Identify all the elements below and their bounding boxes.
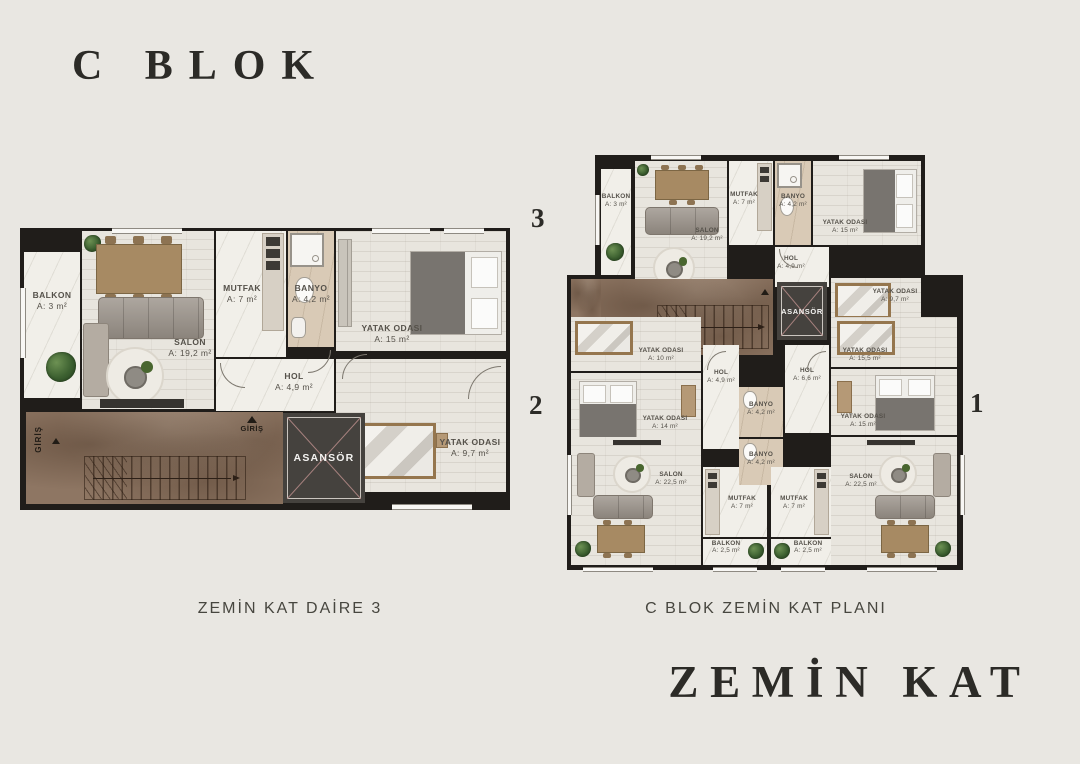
room-yatak-odasi-1: YATAK ODASI A: 15 m² bbox=[336, 231, 506, 351]
u2-hol-area: A: 4,9 m² bbox=[701, 377, 741, 385]
window bbox=[781, 567, 825, 572]
u1-room-salon: SALON A: 22,5 m² bbox=[831, 437, 957, 565]
asansor-label: ASANSÖR bbox=[294, 452, 355, 464]
u2-yatak2-label: YATAK ODASI bbox=[643, 415, 688, 422]
giris-label: GİRİŞ bbox=[232, 416, 272, 433]
dining-table bbox=[96, 244, 182, 294]
stairs bbox=[84, 456, 246, 500]
entrance-arrow-icon bbox=[52, 438, 60, 444]
u1-room-balkon: BALKON A: 2,5 m² bbox=[771, 539, 831, 565]
window bbox=[713, 567, 757, 572]
u1-room-mutfak: MUTFAK A: 7 m² bbox=[771, 467, 831, 537]
double-bed bbox=[579, 381, 637, 439]
u1-mutfak-label: MUTFAK bbox=[780, 495, 808, 502]
u3-room-balkon: BALKON A: 3 m² bbox=[601, 169, 631, 275]
u1-yatak2-area: A: 15 m² bbox=[833, 421, 893, 429]
unit-number-2: 2 bbox=[529, 390, 543, 421]
u3-room-yatak-odasi-1: YATAK ODASI A: 15 m² bbox=[813, 161, 921, 245]
hol-area: A: 4,9 m² bbox=[262, 382, 326, 393]
dining-table bbox=[655, 170, 709, 200]
u2-banyo-label: BANYO bbox=[749, 401, 773, 408]
kitchen-counter bbox=[262, 233, 284, 331]
window bbox=[372, 228, 430, 234]
u1-balkon-area: A: 2,5 m² bbox=[785, 547, 831, 554]
u3-room-banyo: BANYO A: 4,2 m² bbox=[775, 161, 811, 245]
tv-console bbox=[867, 440, 915, 445]
u1-banyo-label: BANYO bbox=[749, 451, 773, 458]
daire3-floor-plan: BALKON A: 3 m² SALON A: 19,2 m² bbox=[20, 228, 510, 510]
balkon-area: A: 3 m² bbox=[24, 301, 80, 312]
plant-icon bbox=[575, 541, 591, 557]
desk bbox=[837, 381, 852, 413]
floor-plan-sheet: C BLOK BALKON A: 3 m² bbox=[0, 0, 1080, 764]
unit-number-1: 1 bbox=[970, 388, 984, 419]
salon-area: A: 19,2 m² bbox=[158, 348, 222, 359]
u2-yatak1-label: YATAK ODASI bbox=[639, 347, 684, 354]
window bbox=[839, 155, 889, 160]
window bbox=[960, 455, 965, 515]
plant-icon bbox=[637, 164, 649, 176]
u2-room-salon: SALON A: 22,5 m² bbox=[571, 437, 701, 565]
shower bbox=[777, 163, 802, 188]
right-plan-caption: C BLOK ZEMİN KAT PLANI bbox=[567, 600, 965, 618]
mutfak-area: A: 7 m² bbox=[216, 294, 268, 305]
floor-title: ZEMİN KAT bbox=[660, 656, 1040, 708]
window bbox=[583, 567, 653, 572]
dining-table bbox=[597, 525, 645, 553]
u1-salon-label: SALON bbox=[849, 473, 872, 480]
u3-room-salon: SALON A: 19,2 m² bbox=[635, 161, 727, 297]
c-blok-floor-plan: BALKON A: 3 m² SALON A: 19,2 m² bbox=[567, 155, 965, 570]
u1-salon-area: A: 22,5 m² bbox=[833, 481, 889, 489]
entrance-arrow-icon bbox=[247, 416, 257, 423]
sofa bbox=[875, 495, 935, 519]
tv-console bbox=[613, 440, 661, 445]
plant-icon bbox=[935, 541, 951, 557]
u3-room-yatak-odasi-2: YATAK ODASI A: 9,7 m² bbox=[831, 278, 921, 322]
plant-icon bbox=[748, 543, 764, 559]
plant-icon bbox=[606, 243, 624, 261]
u3-mutfak-area: A: 7 m² bbox=[725, 199, 763, 207]
dining-table bbox=[881, 525, 929, 553]
u2-room-banyo: BANYO A: 4,2 m² bbox=[739, 387, 783, 437]
left-plan-caption: ZEMİN KAT DAİRE 3 bbox=[45, 600, 535, 618]
shower bbox=[290, 233, 324, 267]
u1-yatak2-label: YATAK ODASI bbox=[841, 413, 886, 420]
plant-icon bbox=[46, 352, 76, 382]
yatak-odasi-1-area: A: 15 m² bbox=[346, 334, 438, 345]
u3-mutfak-label: MUTFAK bbox=[730, 191, 758, 198]
banyo-label: BANYO bbox=[295, 283, 328, 293]
room-balkon: BALKON A: 3 m² bbox=[24, 252, 80, 398]
window bbox=[112, 228, 182, 234]
u3-banyo-area: A: 4,2 m² bbox=[773, 201, 813, 209]
u1-balkon-label: BALKON bbox=[794, 540, 823, 547]
giris-label: GİRİŞ bbox=[34, 426, 43, 453]
room-banyo: BANYO A: 4,2 m² bbox=[288, 231, 334, 347]
salon-label: SALON bbox=[174, 337, 206, 347]
banyo-area: A: 4,2 m² bbox=[288, 294, 334, 305]
u1-mutfak-area: A: 7 m² bbox=[771, 503, 817, 511]
elevator: ASANSÖR bbox=[777, 282, 827, 340]
u2-balkon-area: A: 2,5 m² bbox=[703, 547, 749, 554]
u1-room-yatak-odasi-2: YATAK ODASI A: 15 m² bbox=[831, 369, 957, 435]
u3-yatak1-area: A: 15 m² bbox=[815, 227, 875, 235]
elevator: ASANSÖR bbox=[283, 413, 365, 503]
window bbox=[867, 567, 937, 572]
u1-banyo-area: A: 4,2 m² bbox=[737, 459, 785, 467]
u3-banyo-label: BANYO bbox=[781, 193, 805, 200]
u2-salon-area: A: 22,5 m² bbox=[641, 479, 701, 487]
unit-number-3: 3 bbox=[531, 203, 545, 234]
u2-salon-label: SALON bbox=[659, 471, 682, 478]
u2-yatak1-area: A: 10 m² bbox=[629, 355, 693, 363]
u2-mutfak-area: A: 7 m² bbox=[717, 503, 767, 511]
block-title: C BLOK bbox=[72, 42, 330, 90]
u3-yatak2-area: A: 9,7 m² bbox=[869, 296, 921, 304]
u3-yatak1-label: YATAK ODASI bbox=[823, 219, 868, 226]
sofa bbox=[593, 495, 653, 519]
yatak-odasi-1-label: YATAK ODASI bbox=[362, 323, 423, 333]
window bbox=[651, 155, 701, 160]
u3-yatak2-label: YATAK ODASI bbox=[873, 288, 918, 295]
yatak-odasi-2-label: YATAK ODASI bbox=[440, 437, 501, 447]
single-bed bbox=[575, 321, 633, 355]
u3-room-mutfak: MUTFAK A: 7 m² bbox=[729, 161, 773, 245]
tv-console bbox=[100, 399, 184, 408]
chaise-lounge bbox=[83, 323, 109, 397]
u3-salon-area: A: 19,2 m² bbox=[677, 235, 737, 243]
desk bbox=[681, 385, 696, 417]
u1-yatak1-area: A: 15,5 m² bbox=[835, 355, 895, 363]
u3-salon-label: SALON bbox=[695, 227, 718, 234]
u1-hol-area: A: 6,6 m² bbox=[783, 375, 831, 383]
window bbox=[567, 455, 572, 515]
window bbox=[595, 195, 600, 245]
wardrobe bbox=[338, 239, 352, 327]
entrance-arrow-icon bbox=[761, 289, 769, 295]
u2-mutfak-label: MUTFAK bbox=[728, 495, 756, 502]
armchair bbox=[933, 453, 951, 497]
u2-room-yatak-odasi-1: YATAK ODASI A: 10 m² bbox=[571, 317, 701, 371]
window bbox=[20, 288, 26, 358]
room-salon: SALON A: 19,2 m² bbox=[82, 231, 214, 409]
u1-room-yatak-odasi-1: YATAK ODASI A: 15,5 m² bbox=[831, 317, 957, 367]
room-mutfak: MUTFAK A: 7 m² bbox=[216, 231, 286, 357]
mutfak-label: MUTFAK bbox=[223, 283, 261, 293]
u2-room-balkon: BALKON A: 2,5 m² bbox=[703, 539, 767, 565]
u3-balkon-label: BALKON bbox=[602, 193, 631, 200]
round-rug bbox=[106, 347, 164, 405]
hol-label: HOL bbox=[284, 371, 303, 381]
u3-balkon-area: A: 3 m² bbox=[597, 201, 635, 209]
window bbox=[444, 228, 484, 234]
door-arc bbox=[342, 354, 367, 379]
corridor-entry bbox=[571, 279, 601, 319]
building-corridor: GİRİŞ GİRİŞ bbox=[26, 412, 283, 504]
u2-hol-label: HOL bbox=[714, 369, 728, 376]
u2-balkon-label: BALKON bbox=[712, 540, 741, 547]
armchair bbox=[577, 453, 595, 497]
u2-banyo-area: A: 4,2 m² bbox=[737, 409, 785, 417]
window bbox=[392, 504, 472, 510]
sofa bbox=[98, 297, 204, 339]
asansor-label: ASANSÖR bbox=[781, 307, 823, 316]
sink bbox=[291, 317, 306, 338]
balkon-label: BALKON bbox=[33, 290, 72, 300]
yatak-odasi-2-area: A: 9,7 m² bbox=[432, 448, 508, 459]
u1-yatak1-label: YATAK ODASI bbox=[843, 347, 888, 354]
u2-yatak2-area: A: 14 m² bbox=[633, 423, 697, 431]
